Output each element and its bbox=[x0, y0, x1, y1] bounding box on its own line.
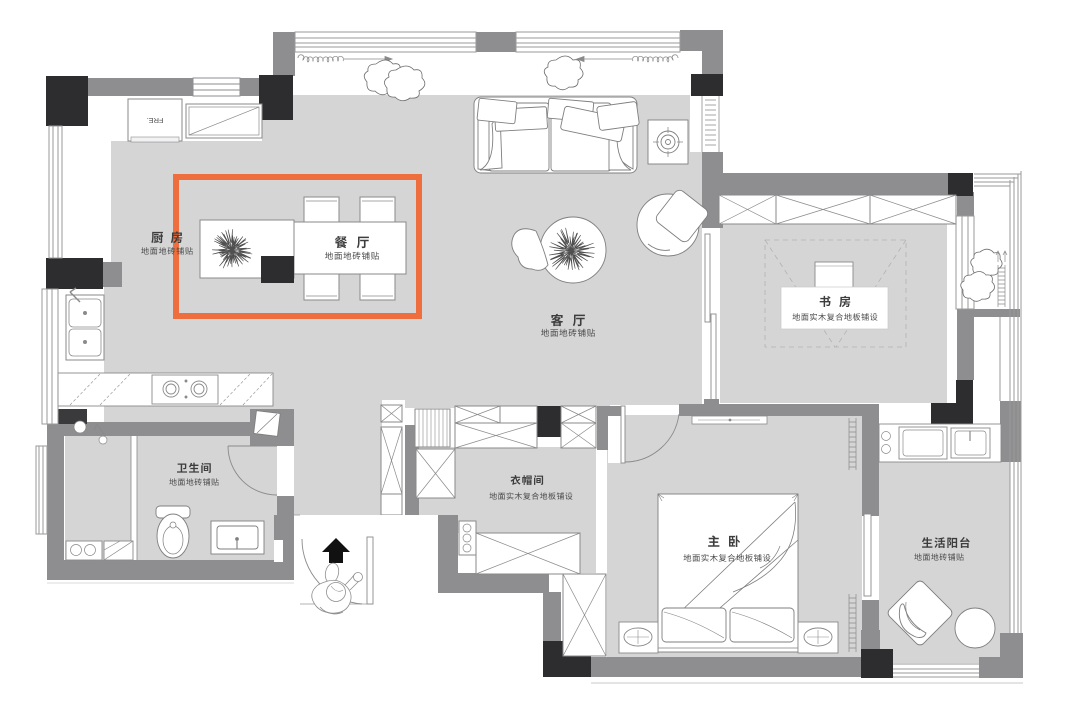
svg-text:FRE.: FRE. bbox=[146, 116, 163, 125]
